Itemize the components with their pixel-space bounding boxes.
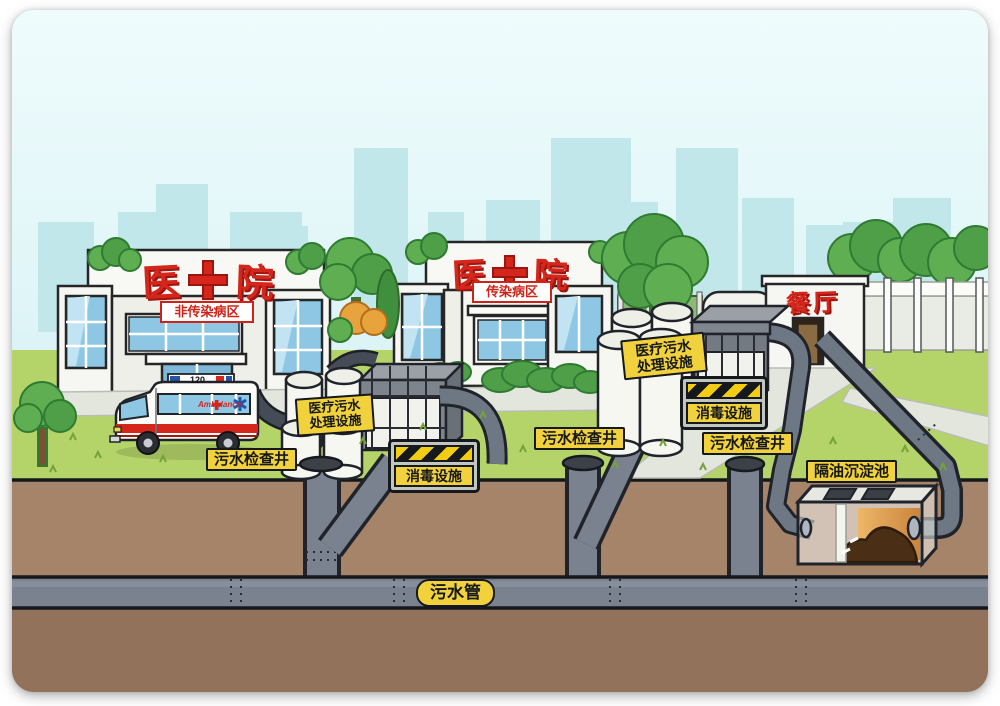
scene-illustration <box>12 10 988 692</box>
canteen-sign: 餐厅 <box>785 282 840 319</box>
inspection-well-label-1: 污水检查井 <box>206 448 297 471</box>
ambulance-number: 120 <box>190 375 205 385</box>
hazard-stripe <box>686 382 762 399</box>
oil-separation-tank <box>798 486 936 564</box>
sewage-pipe-label: 污水管 <box>416 579 495 607</box>
inspection-well-label-2: 污水检查井 <box>534 427 625 450</box>
disinfection-label: 消毒设施 <box>394 465 474 487</box>
soil-deep <box>12 608 988 692</box>
boundary-fence <box>854 278 988 352</box>
treatment-facility-label-left: 医疗污水 处理设施 <box>295 393 375 436</box>
illustration-stage: 医 院 医 院 非传染病区 传染病区 餐厅 医疗污水 处理设施 医疗污水 处理设… <box>0 0 1000 706</box>
scene-frame <box>12 10 988 692</box>
disinfection-box-right: 消毒设施 <box>680 376 768 430</box>
disinfection-box-left: 消毒设施 <box>388 439 480 493</box>
ambulance-side-text: Ambulance <box>198 400 241 409</box>
hospital-sign-left: 医 院 <box>142 252 274 307</box>
hospital-char-right: 院 <box>235 251 275 307</box>
ward-sign-infectious: 传染病区 <box>472 281 552 303</box>
inspection-well-label-3: 污水检查井 <box>702 432 793 455</box>
red-cross-icon <box>188 260 228 300</box>
ward-sign-noninfectious: 非传染病区 <box>160 301 254 323</box>
hospital-char-left: 医 <box>141 251 182 308</box>
hazard-stripe <box>394 445 474 462</box>
disinfection-label: 消毒设施 <box>686 402 762 424</box>
oil-tank-label: 隔油沉淀池 <box>806 460 897 483</box>
